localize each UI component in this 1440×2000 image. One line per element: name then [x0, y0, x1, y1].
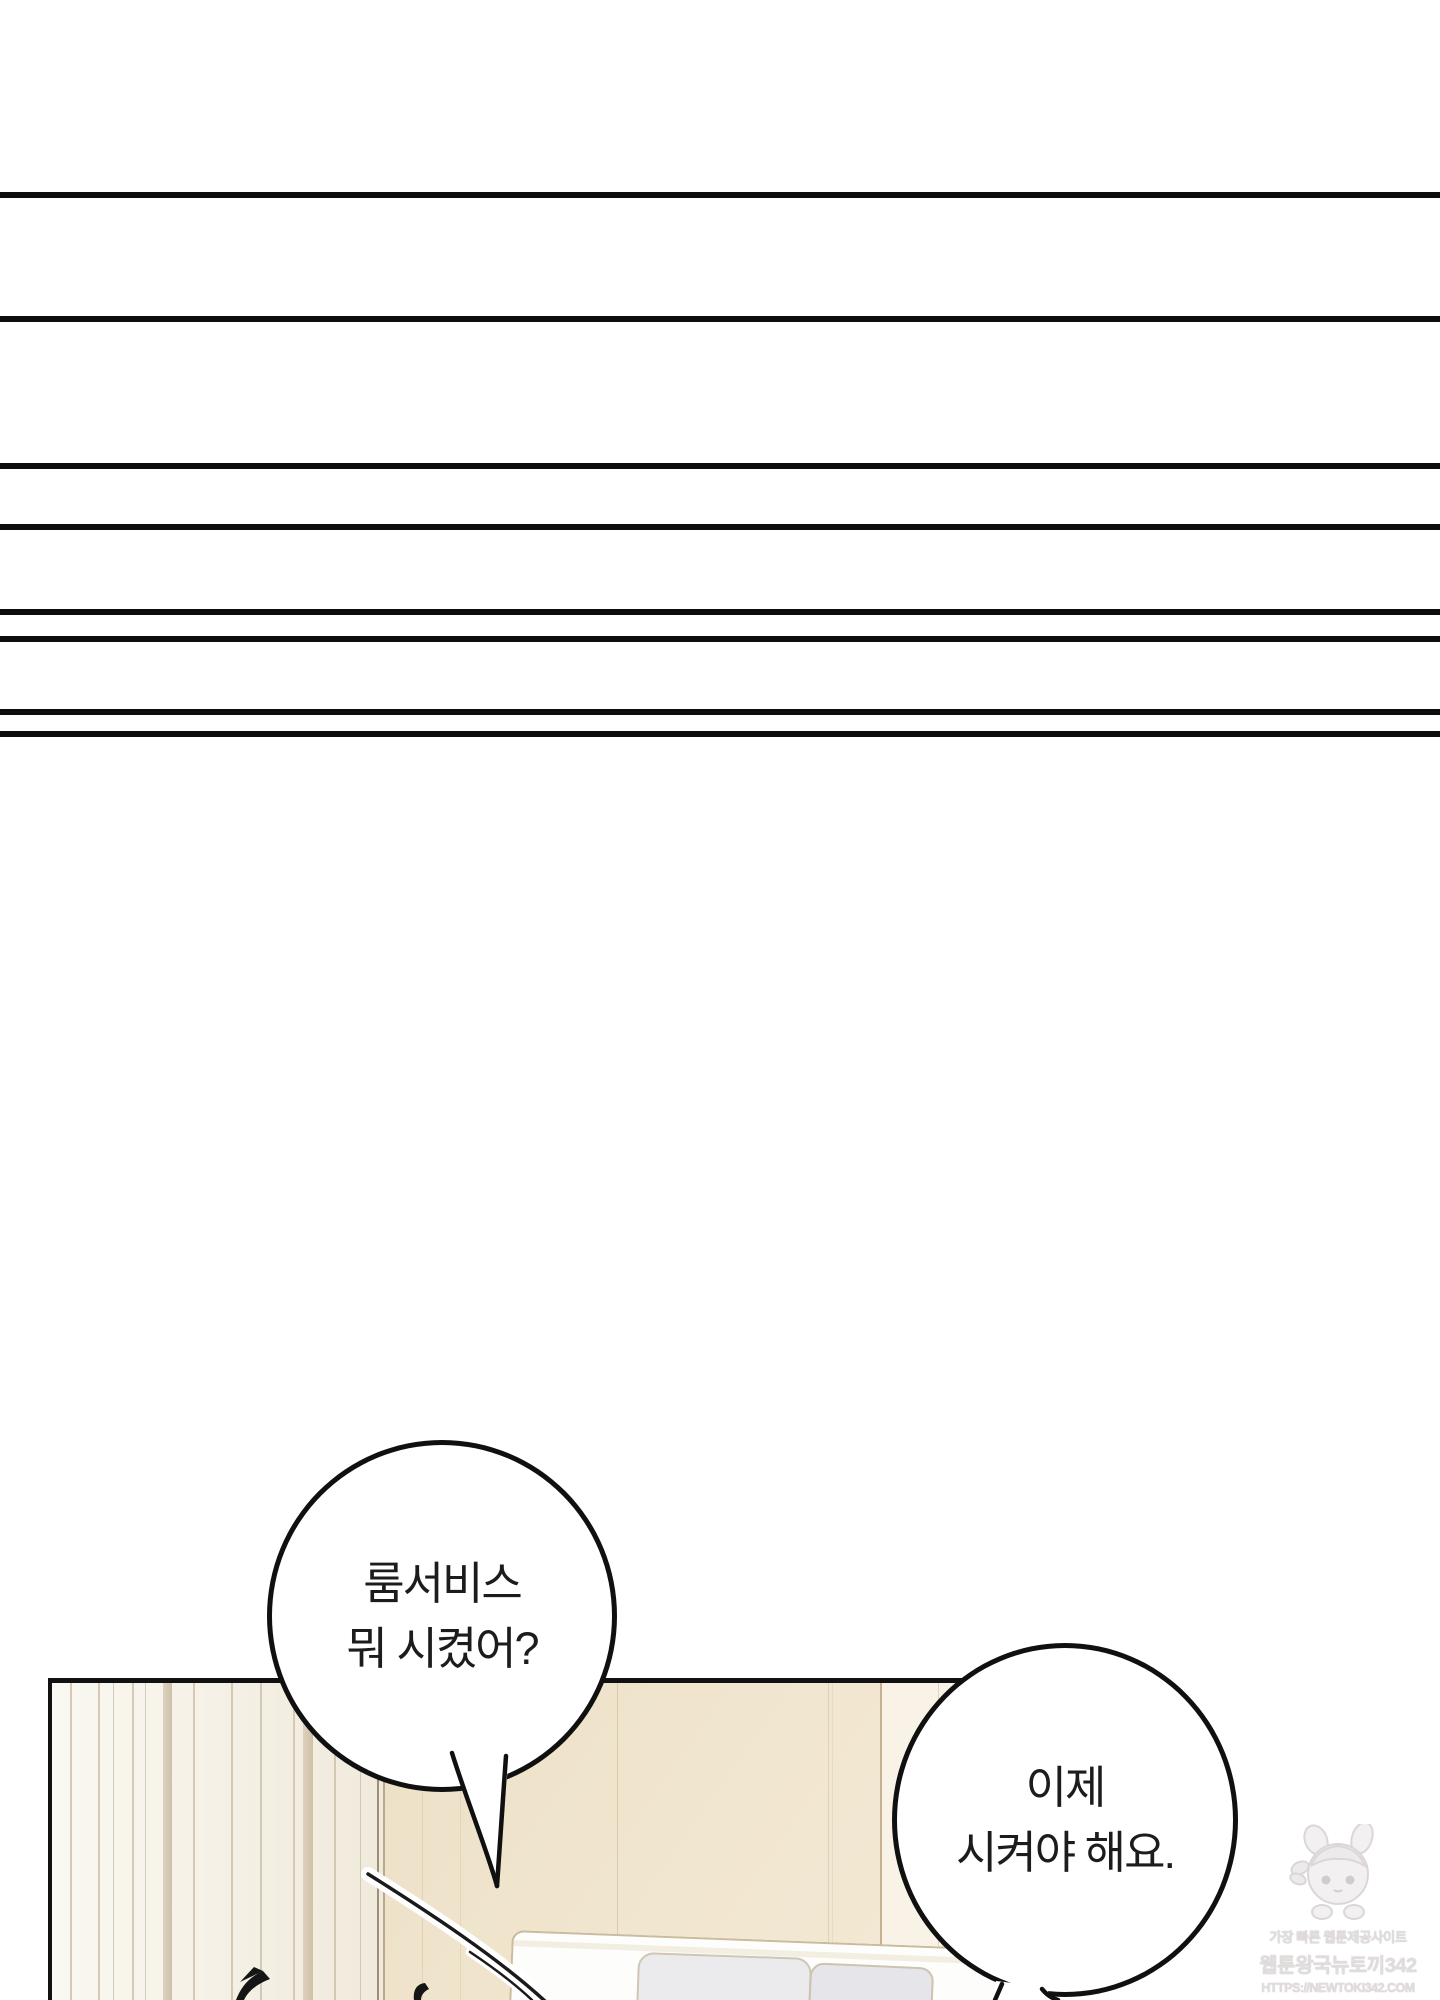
- watermark-site-name: 웹툰왕국뉴토끼342: [1259, 1949, 1416, 1978]
- speech-bubble-2-text: 이제 시켜야 해요.: [956, 1755, 1174, 1886]
- transition-line-6: [0, 636, 1440, 642]
- webtoon-page: 룸서비스 뭐 시켰어? 이제 시켜야 해요.: [0, 0, 1440, 2000]
- transition-line-7: [0, 709, 1440, 715]
- transition-line-8: [0, 731, 1440, 737]
- transition-line-3: [0, 463, 1440, 469]
- watermark-url: HTTPS://NEWTOKI342.COM: [1261, 1981, 1414, 1995]
- speech-bubble-1: 룸서비스 뭐 시켰어?: [267, 1440, 617, 1792]
- pillow: [636, 1952, 812, 2000]
- site-watermark: 가장 빠른 웹툰제공사이트 웹툰왕국뉴토끼342 HTTPS://NEWTOKI…: [1256, 1824, 1420, 1995]
- transition-line-4: [0, 524, 1440, 530]
- speech-bubble-1-text: 룸서비스 뭐 시켰어?: [346, 1551, 537, 1682]
- transition-line-5: [0, 609, 1440, 615]
- transition-line-2: [0, 316, 1440, 322]
- pillow: [808, 1962, 934, 2000]
- transition-line-1: [0, 192, 1440, 198]
- watermark-tagline: 가장 빠른 웹툰제공사이트: [1269, 1926, 1407, 1946]
- mascot-character-icon: [1278, 1824, 1398, 1924]
- speech-bubble-2: 이제 시켜야 해요.: [892, 1643, 1238, 1997]
